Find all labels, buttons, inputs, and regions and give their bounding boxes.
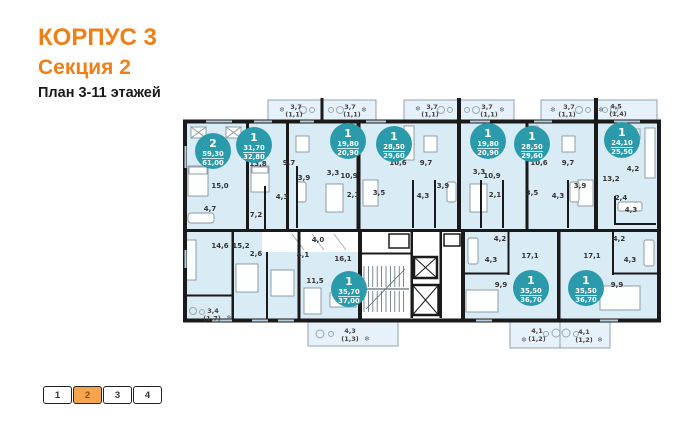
- room-area-label: 3,5: [373, 189, 386, 197]
- badge-area-living: 59,30: [202, 150, 224, 158]
- apartment-badge-9[interactable]: 1 35,50 36,70: [513, 270, 549, 306]
- ac-unit-icon: ❄: [279, 106, 285, 114]
- badge-area-living: 28,50: [521, 143, 543, 151]
- staircase: [363, 266, 409, 312]
- balcony-area-sub: (1,2): [575, 336, 592, 344]
- room-area-label: 4,3: [485, 256, 498, 264]
- room-area-label: 4,3: [276, 193, 289, 201]
- room-area-label: 4,3: [624, 256, 637, 264]
- badge-area-living: 19,80: [337, 140, 359, 148]
- room-area-label: 4,3: [625, 206, 638, 214]
- room-area-label: 7,2: [250, 211, 263, 219]
- room-area-label: 9,9: [611, 281, 624, 289]
- room-area-label: 3,9: [437, 182, 450, 190]
- room-area-label: 4,2: [613, 235, 626, 243]
- balcony-area-sub: (1,3): [341, 335, 358, 343]
- apartment-badge-6[interactable]: 1 28,50 29,60: [514, 126, 550, 162]
- ac-unit-icon: ❄: [361, 106, 367, 114]
- balcony-area-sub: (1,1): [558, 111, 575, 119]
- room-area-label: 9,7: [562, 159, 575, 167]
- badge-area-living: 24,10: [611, 139, 633, 147]
- badge-rooms: 1: [618, 126, 626, 139]
- ac-unit-icon: ❄: [499, 106, 505, 114]
- badge-area-living: 35,50: [575, 287, 597, 295]
- room-area-label: 4,0: [312, 236, 325, 244]
- badge-rooms: 1: [344, 127, 352, 140]
- ac-unit-icon: ❄: [550, 106, 556, 114]
- balcony-area-sub: (1,1): [480, 111, 497, 119]
- badge-area-total: 36,70: [575, 296, 597, 304]
- badge-rooms: 2: [209, 137, 217, 150]
- badge-area-living: 19,80: [477, 140, 499, 148]
- apartment-badge-1[interactable]: 2 59,30 61,00: [195, 133, 231, 169]
- badge-area-total: 20,90: [337, 149, 359, 157]
- balcony-area-sub: (1,2): [528, 335, 545, 343]
- ac-unit-icon: ❄: [226, 314, 232, 322]
- badge-area-total: 29,60: [383, 152, 405, 160]
- room-area-label: 14,6: [211, 242, 228, 250]
- badge-area-total: 20,90: [477, 149, 499, 157]
- badge-area-total: 61,00: [202, 159, 224, 167]
- badge-area-total: 37,00: [338, 297, 360, 305]
- room-area-label: 10,9: [340, 172, 357, 180]
- ac-unit-icon: ❄: [415, 105, 421, 113]
- room-area-label: 4,3: [552, 192, 565, 200]
- balcony-area-sub: (1,1): [421, 111, 438, 119]
- room-area-label: 3,9: [298, 174, 311, 182]
- badge-rooms: 1: [527, 274, 535, 287]
- apartment-badge-3[interactable]: 1 19,80 20,90: [330, 123, 366, 159]
- badge-area-living: 35,70: [338, 288, 360, 296]
- apartment-badge-4[interactable]: 1 28,50 29,60: [376, 126, 412, 162]
- room-area-label: 4,3: [417, 192, 430, 200]
- room-area-label: 9,9: [495, 281, 508, 289]
- room-area-label: 3,5: [526, 189, 539, 197]
- balcony-area-label: 4,1: [578, 328, 590, 336]
- apartment-badge-5[interactable]: 1 19,80 20,90: [470, 123, 506, 159]
- badge-rooms: 1: [528, 130, 536, 143]
- room-area-label: 13,2: [602, 175, 619, 183]
- apartment-badge-2[interactable]: 1 31,70 32,80: [236, 127, 272, 163]
- balcony-area-label: 4,3: [344, 327, 356, 335]
- room-area-label: 3,3: [327, 169, 340, 177]
- room-area-label: 2,1: [347, 191, 360, 199]
- badge-area-total: 25,50: [611, 148, 633, 156]
- ac-unit-icon: ❄: [521, 336, 527, 344]
- badge-rooms: 1: [390, 130, 398, 143]
- room-area-label: 17,1: [583, 252, 600, 260]
- room-area-label: 15,0: [211, 182, 228, 190]
- room-area-label: 3,9: [574, 182, 587, 190]
- badge-area-total: 32,80: [243, 153, 265, 161]
- room-area-label: 9,7: [420, 159, 433, 167]
- balcony-area-sub: (1,4): [609, 110, 626, 118]
- ac-unit-icon: ❄: [364, 335, 370, 343]
- apartment-badge-7[interactable]: 1 24,10 25,50: [604, 122, 640, 158]
- badge-area-total: 36,70: [520, 296, 542, 304]
- room-area-label: 2,4: [615, 194, 628, 202]
- room-area-label: 4,1: [297, 251, 310, 259]
- room-area-label: 11,5: [306, 277, 323, 285]
- room-area-label: 15,2: [232, 242, 249, 250]
- badge-area-living: 31,70: [243, 144, 265, 152]
- balcony-area-label: 4,1: [531, 327, 543, 335]
- badge-rooms: 1: [345, 275, 353, 288]
- badge-rooms: 1: [250, 131, 258, 144]
- room-area-label: 4,2: [627, 165, 640, 173]
- room-area-label: 16,1: [334, 255, 351, 263]
- ac-unit-icon: ❄: [598, 106, 604, 114]
- badge-rooms: 1: [582, 274, 590, 287]
- room-area-label: 4,2: [494, 235, 507, 243]
- badge-rooms: 1: [484, 127, 492, 140]
- balcony-area-sub: (1,7): [203, 315, 220, 323]
- apartment-badge-10[interactable]: 1 35,50 36,70: [568, 270, 604, 306]
- room-area-label: 10,9: [483, 172, 500, 180]
- ac-unit-icon: ❄: [597, 336, 603, 344]
- room-area-label: 17,1: [521, 252, 538, 260]
- room-area-label: 2,6: [250, 250, 263, 258]
- apartment-badge-8[interactable]: 1 35,70 37,00: [331, 271, 367, 307]
- badge-area-living: 28,50: [383, 143, 405, 151]
- room-area-label: 2,1: [489, 191, 502, 199]
- badge-area-living: 35,50: [520, 287, 542, 295]
- room-area-label: 4,7: [204, 205, 217, 213]
- room-area-label: 9,7: [283, 159, 296, 167]
- balcony-area-sub: (1,1): [285, 111, 302, 119]
- balcony-area-sub: (1,1): [343, 111, 360, 119]
- floor-plan: ❄ ❄ ❄ ❄ ❄ ❄ ❄ ❄ ❄ ❄ 15,0 13,8 9,7 3,9 4,…: [0, 0, 700, 446]
- badge-area-total: 29,60: [521, 152, 543, 160]
